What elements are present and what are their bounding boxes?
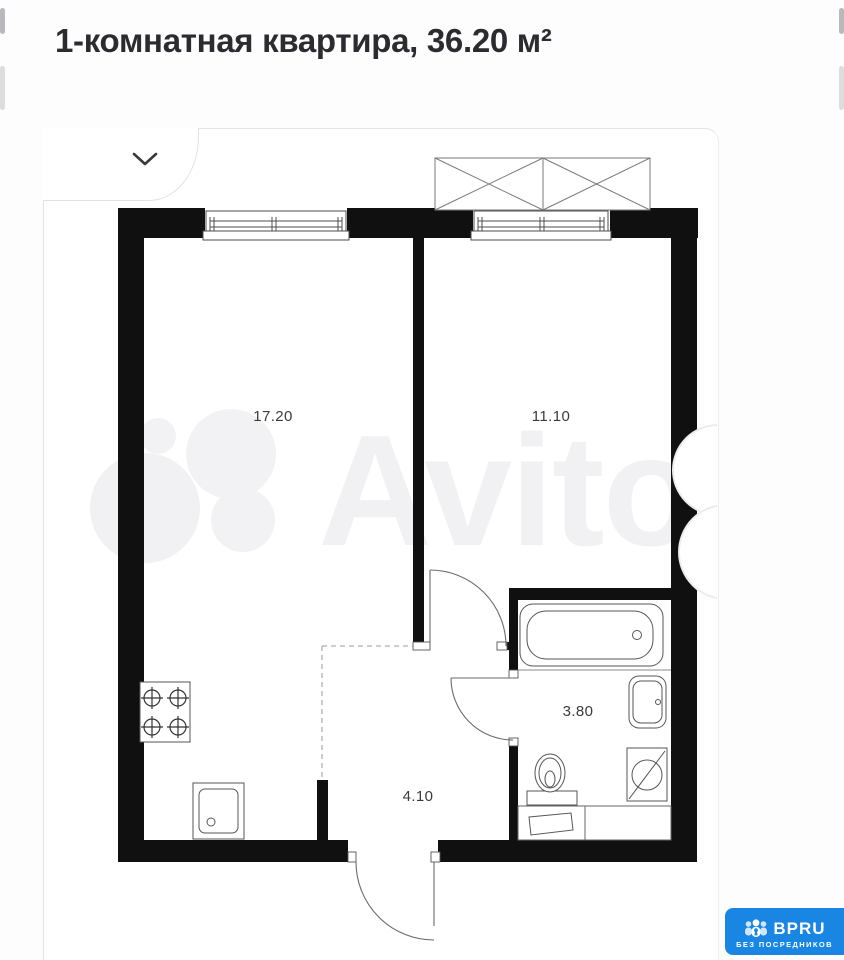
bpru-logo-badge: BPRU БЕЗ ПОСРЕДНИКОВ bbox=[725, 908, 844, 955]
room-label-hallway: 4.10 bbox=[403, 788, 434, 805]
bathroom-counter bbox=[518, 806, 671, 840]
door-jambs bbox=[348, 642, 518, 862]
room-label-bedroom: 11.10 bbox=[532, 408, 570, 425]
door-bedroom bbox=[430, 570, 506, 646]
avito-watermark: Avito bbox=[90, 403, 697, 579]
balcony bbox=[435, 158, 650, 210]
stove-icon bbox=[140, 682, 190, 742]
watermark-text: Avito bbox=[318, 403, 697, 579]
washbasin-icon bbox=[629, 676, 666, 728]
bpru-brand-text: BPRU bbox=[773, 920, 825, 937]
kitchen-sink-icon bbox=[193, 783, 244, 839]
bpru-tagline-text: БЕЗ ПОСРЕДНИКОВ bbox=[736, 941, 833, 949]
kitchen-zone-boundary bbox=[322, 646, 413, 778]
bathtub-icon bbox=[520, 604, 663, 666]
door-bathroom bbox=[451, 678, 513, 740]
people-group-icon bbox=[743, 918, 769, 939]
room-label-living: 17.20 bbox=[253, 408, 293, 425]
listing-photo-page: 1-комнатная квартира, 36.20 м² Avito bbox=[0, 0, 844, 960]
window-bedroom bbox=[471, 211, 611, 240]
collapse-plan-button[interactable] bbox=[43, 128, 199, 201]
washing-machine-icon bbox=[627, 748, 667, 801]
toilet-icon bbox=[527, 754, 577, 805]
door-entrance bbox=[356, 862, 434, 940]
window-living bbox=[203, 211, 349, 240]
room-label-bathroom: 3.80 bbox=[563, 703, 594, 720]
chevron-down-icon bbox=[131, 151, 159, 167]
